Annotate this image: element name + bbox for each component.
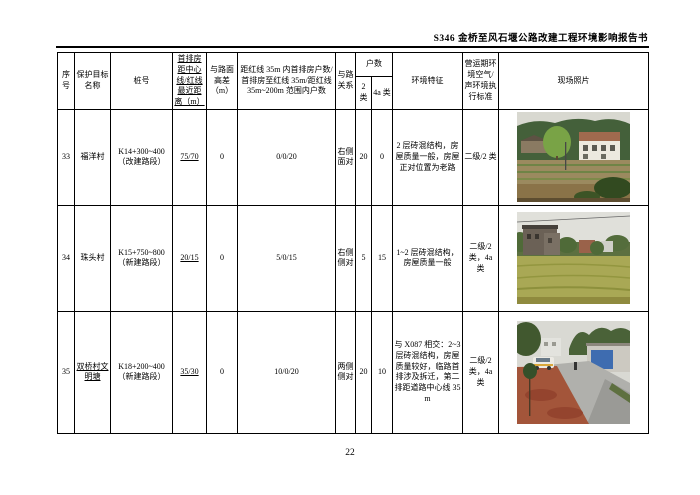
cell-class2: 20 [356,109,372,205]
col-stake: 桩号 [111,53,173,110]
cell-standard: 二级/2 类，4a 类 [463,205,499,311]
site-photo-rural-road [517,321,630,424]
cell-name: 福洋村 [75,109,111,205]
cell-road-relation: 右侧面对 [336,109,356,205]
cell-env-features: 1~2 层砖混结构，房屋质量一般 [393,205,463,311]
cell-photo [499,109,649,205]
col-households-group: 户数 [356,53,393,77]
document-page: S346 金桥至风石堰公路改建工程环境影响报告书 序号 保护目标名称 桩号 首排… [0,0,700,495]
cell-first-row-distance: 75/70 [173,109,207,205]
site-photo-paddy-field [517,212,630,304]
cell-photo [499,311,649,433]
cell-name: 珠头村 [75,205,111,311]
col-standard: 营运期环境空气/声环境执行标准 [463,53,499,110]
cell-env-features: 与 X087 相交：2~3 层砖混结构，房屋质量较好，临路首排涉及拆迁，第二排距… [393,311,463,433]
col-households-range: 距红线 35m 内首排房户数/首排房至红线 35m/距红线 35m~200m 范… [238,53,336,110]
header-row-1: 序号 保护目标名称 桩号 首排房距中心线/红线最近距离（m） 与路面高差（m） … [58,53,649,77]
col-class4a: 4a 类 [372,77,393,110]
photo-white-building [541,338,561,356]
cell-class2: 5 [356,205,372,311]
cell-households-range: 0/0/20 [238,109,336,205]
cell-class2: 20 [356,311,372,433]
table-row-35: 35 双桥村文明塘 K18+200~400（新建路段） 35/30 0 10/0… [58,311,649,433]
header-rule [56,46,649,48]
cell-households-range: 10/0/20 [238,311,336,433]
cell-height-diff: 0 [207,205,238,311]
report-title: S346 金桥至风石堰公路改建工程环境影响报告书 [57,30,648,44]
col-road-relation: 与路关系 [336,53,356,110]
cell-standard: 二级/2 类 [463,109,499,205]
cell-seq: 34 [58,205,75,311]
cell-class4a: 10 [372,311,393,433]
cell-stake: K18+200~400（新建路段） [111,311,173,433]
protection-targets-table: 序号 保护目标名称 桩号 首排房距中心线/红线最近距离（m） 与路面高差（m） … [57,52,649,434]
cell-households-range: 5/0/15 [238,205,336,311]
page-number: 22 [0,448,700,458]
cell-first-row-distance: 20/15 [173,205,207,311]
site-photo-village-hillside [517,112,630,202]
col-photo: 现场照片 [499,53,649,110]
table-row-33: 33 福洋村 K14+300~400（改建路段） 75/70 0 0/0/20 … [58,109,649,205]
cell-name: 双桥村文明塘 [75,311,111,433]
cell-first-row-distance: 35/30 [173,311,207,433]
cell-stake: K14+300~400（改建路段） [111,109,173,205]
cell-env-features: 2 层砖混结构，房屋质量一般，房屋正对位置为老路 [393,109,463,205]
photo-paddy [517,256,630,304]
cell-road-relation: 两侧侧对 [336,311,356,433]
col-name: 保护目标名称 [75,53,111,110]
cell-stake: K15+750~800（新建路段） [111,205,173,311]
cell-seq: 33 [58,109,75,205]
col-seq: 序号 [58,53,75,110]
cell-road-relation: 右侧侧对 [336,205,356,311]
col-height-diff: 与路面高差（m） [207,53,238,110]
cell-class4a: 0 [372,109,393,205]
col-env-features: 环境特征 [393,53,463,110]
cell-standard: 二级/2 类，4a 类 [463,311,499,433]
cell-seq: 35 [58,311,75,433]
col-first-row-distance: 首排房距中心线/红线最近距离（m） [173,53,207,110]
photo-tree [543,126,571,158]
table-row-34: 34 珠头村 K15+750~800（新建路段） 20/15 0 5/0/15 … [58,205,649,311]
cell-height-diff: 0 [207,311,238,433]
cell-photo [499,205,649,311]
photo-sapling [529,373,530,416]
photo-pedestrian [574,362,577,370]
col-class2: 2 类 [356,77,372,110]
cell-class4a: 15 [372,205,393,311]
cell-height-diff: 0 [207,109,238,205]
